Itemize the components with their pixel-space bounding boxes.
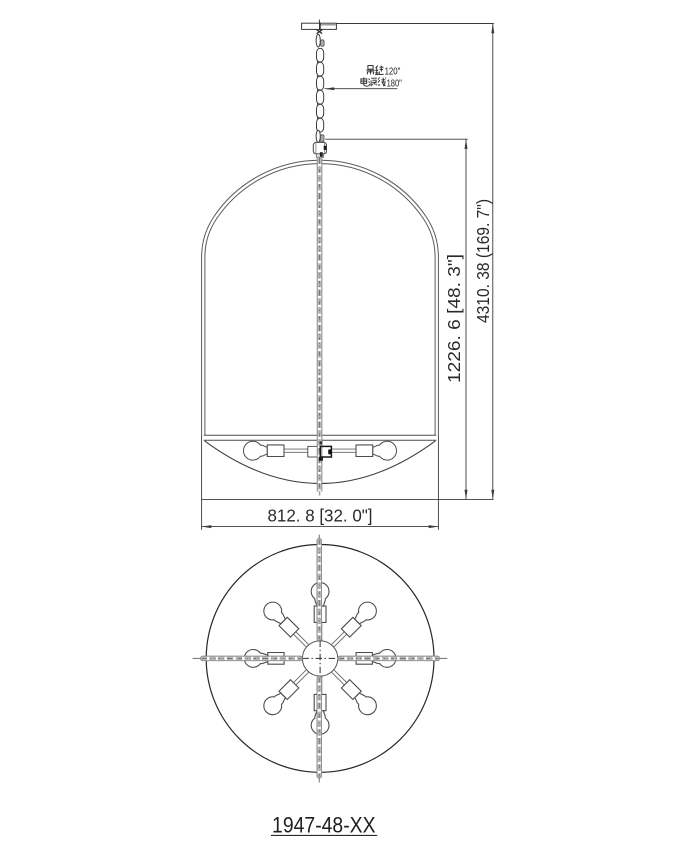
svg-text:180": 180" (387, 78, 402, 89)
svg-text:1226. 6 [48. 3"]: 1226. 6 [48. 3"] (444, 254, 464, 383)
svg-text:812. 8 [32. 0"]: 812. 8 [32. 0"] (268, 505, 373, 525)
svg-text:1947-48-XX: 1947-48-XX (272, 812, 376, 837)
svg-text:4310. 38 (169. 7"): 4310. 38 (169. 7") (473, 199, 493, 323)
svg-text:120": 120" (385, 67, 401, 78)
